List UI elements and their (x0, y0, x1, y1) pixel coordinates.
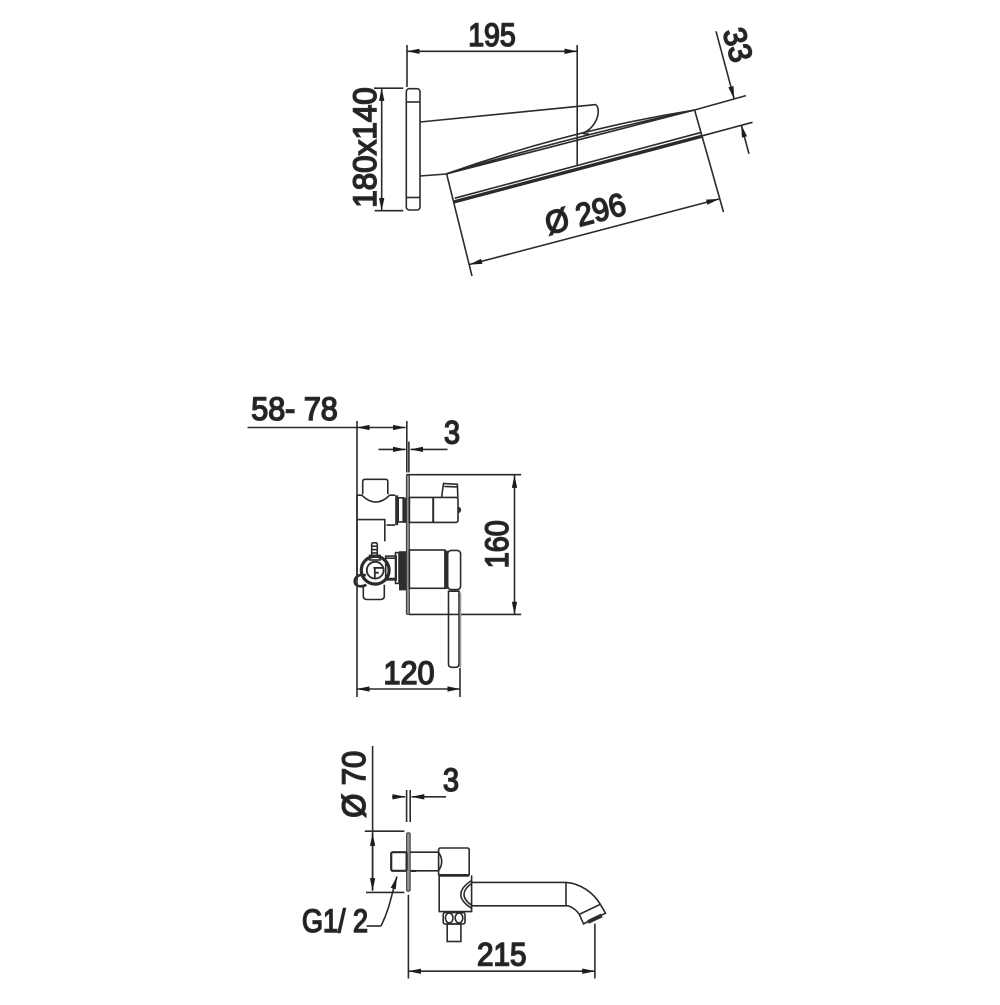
svg-text:195: 195 (468, 17, 516, 53)
svg-text:3: 3 (443, 762, 459, 798)
svg-text:215: 215 (477, 937, 527, 973)
svg-text:G1/ 2: G1/ 2 (302, 903, 368, 939)
svg-text:Ø 70: Ø 70 (336, 751, 372, 818)
svg-text:58- 78: 58- 78 (251, 391, 338, 427)
svg-text:3: 3 (444, 415, 460, 451)
svg-text:120: 120 (384, 655, 435, 691)
svg-text:Ø 296: Ø 296 (541, 186, 629, 242)
svg-text:160: 160 (479, 520, 515, 568)
svg-text:33: 33 (716, 24, 760, 67)
svg-text:180x140: 180x140 (347, 87, 383, 208)
